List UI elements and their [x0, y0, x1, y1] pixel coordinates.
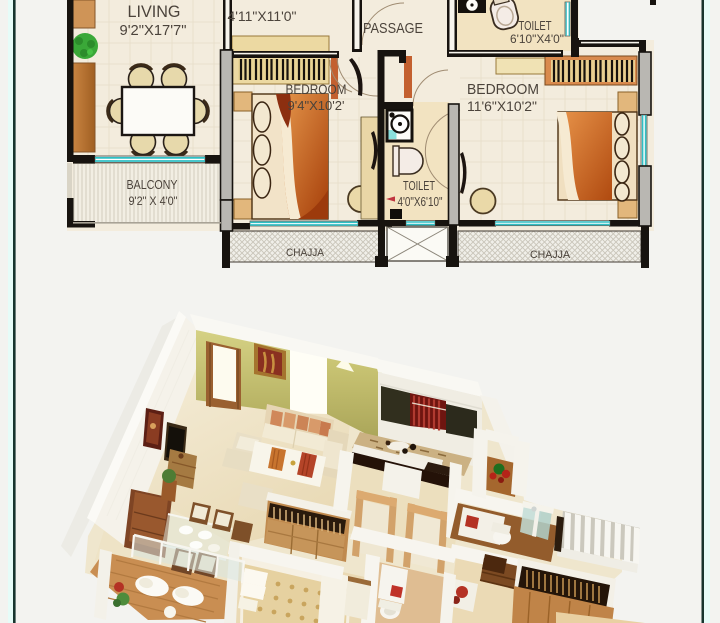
svg-text:PASSAGE: PASSAGE	[363, 20, 423, 37]
svg-text:9'4"X10'2': 9'4"X10'2'	[288, 98, 345, 113]
svg-text:TOILET: TOILET	[519, 18, 552, 33]
svg-text:9'2"X17'7": 9'2"X17'7"	[120, 22, 187, 39]
svg-text:4'11"X11'0": 4'11"X11'0"	[228, 8, 297, 24]
svg-text:9'2" X 4'0": 9'2" X 4'0"	[129, 194, 178, 208]
svg-text:BALCONY: BALCONY	[127, 177, 178, 192]
svg-text:LIVING: LIVING	[128, 3, 181, 21]
svg-text:TOILET: TOILET	[403, 178, 435, 193]
svg-text:11'6"X10'2": 11'6"X10'2"	[467, 99, 537, 114]
svg-text:6'10"X4'0": 6'10"X4'0"	[510, 34, 564, 46]
svg-text:CHAJJA: CHAJJA	[286, 247, 325, 259]
svg-text:BEDROOM: BEDROOM	[286, 81, 347, 97]
svg-text:BEDROOM: BEDROOM	[467, 81, 539, 98]
svg-text:4'0"X6'10": 4'0"X6'10"	[398, 195, 443, 209]
svg-text:CHAJJA: CHAJJA	[530, 249, 571, 261]
